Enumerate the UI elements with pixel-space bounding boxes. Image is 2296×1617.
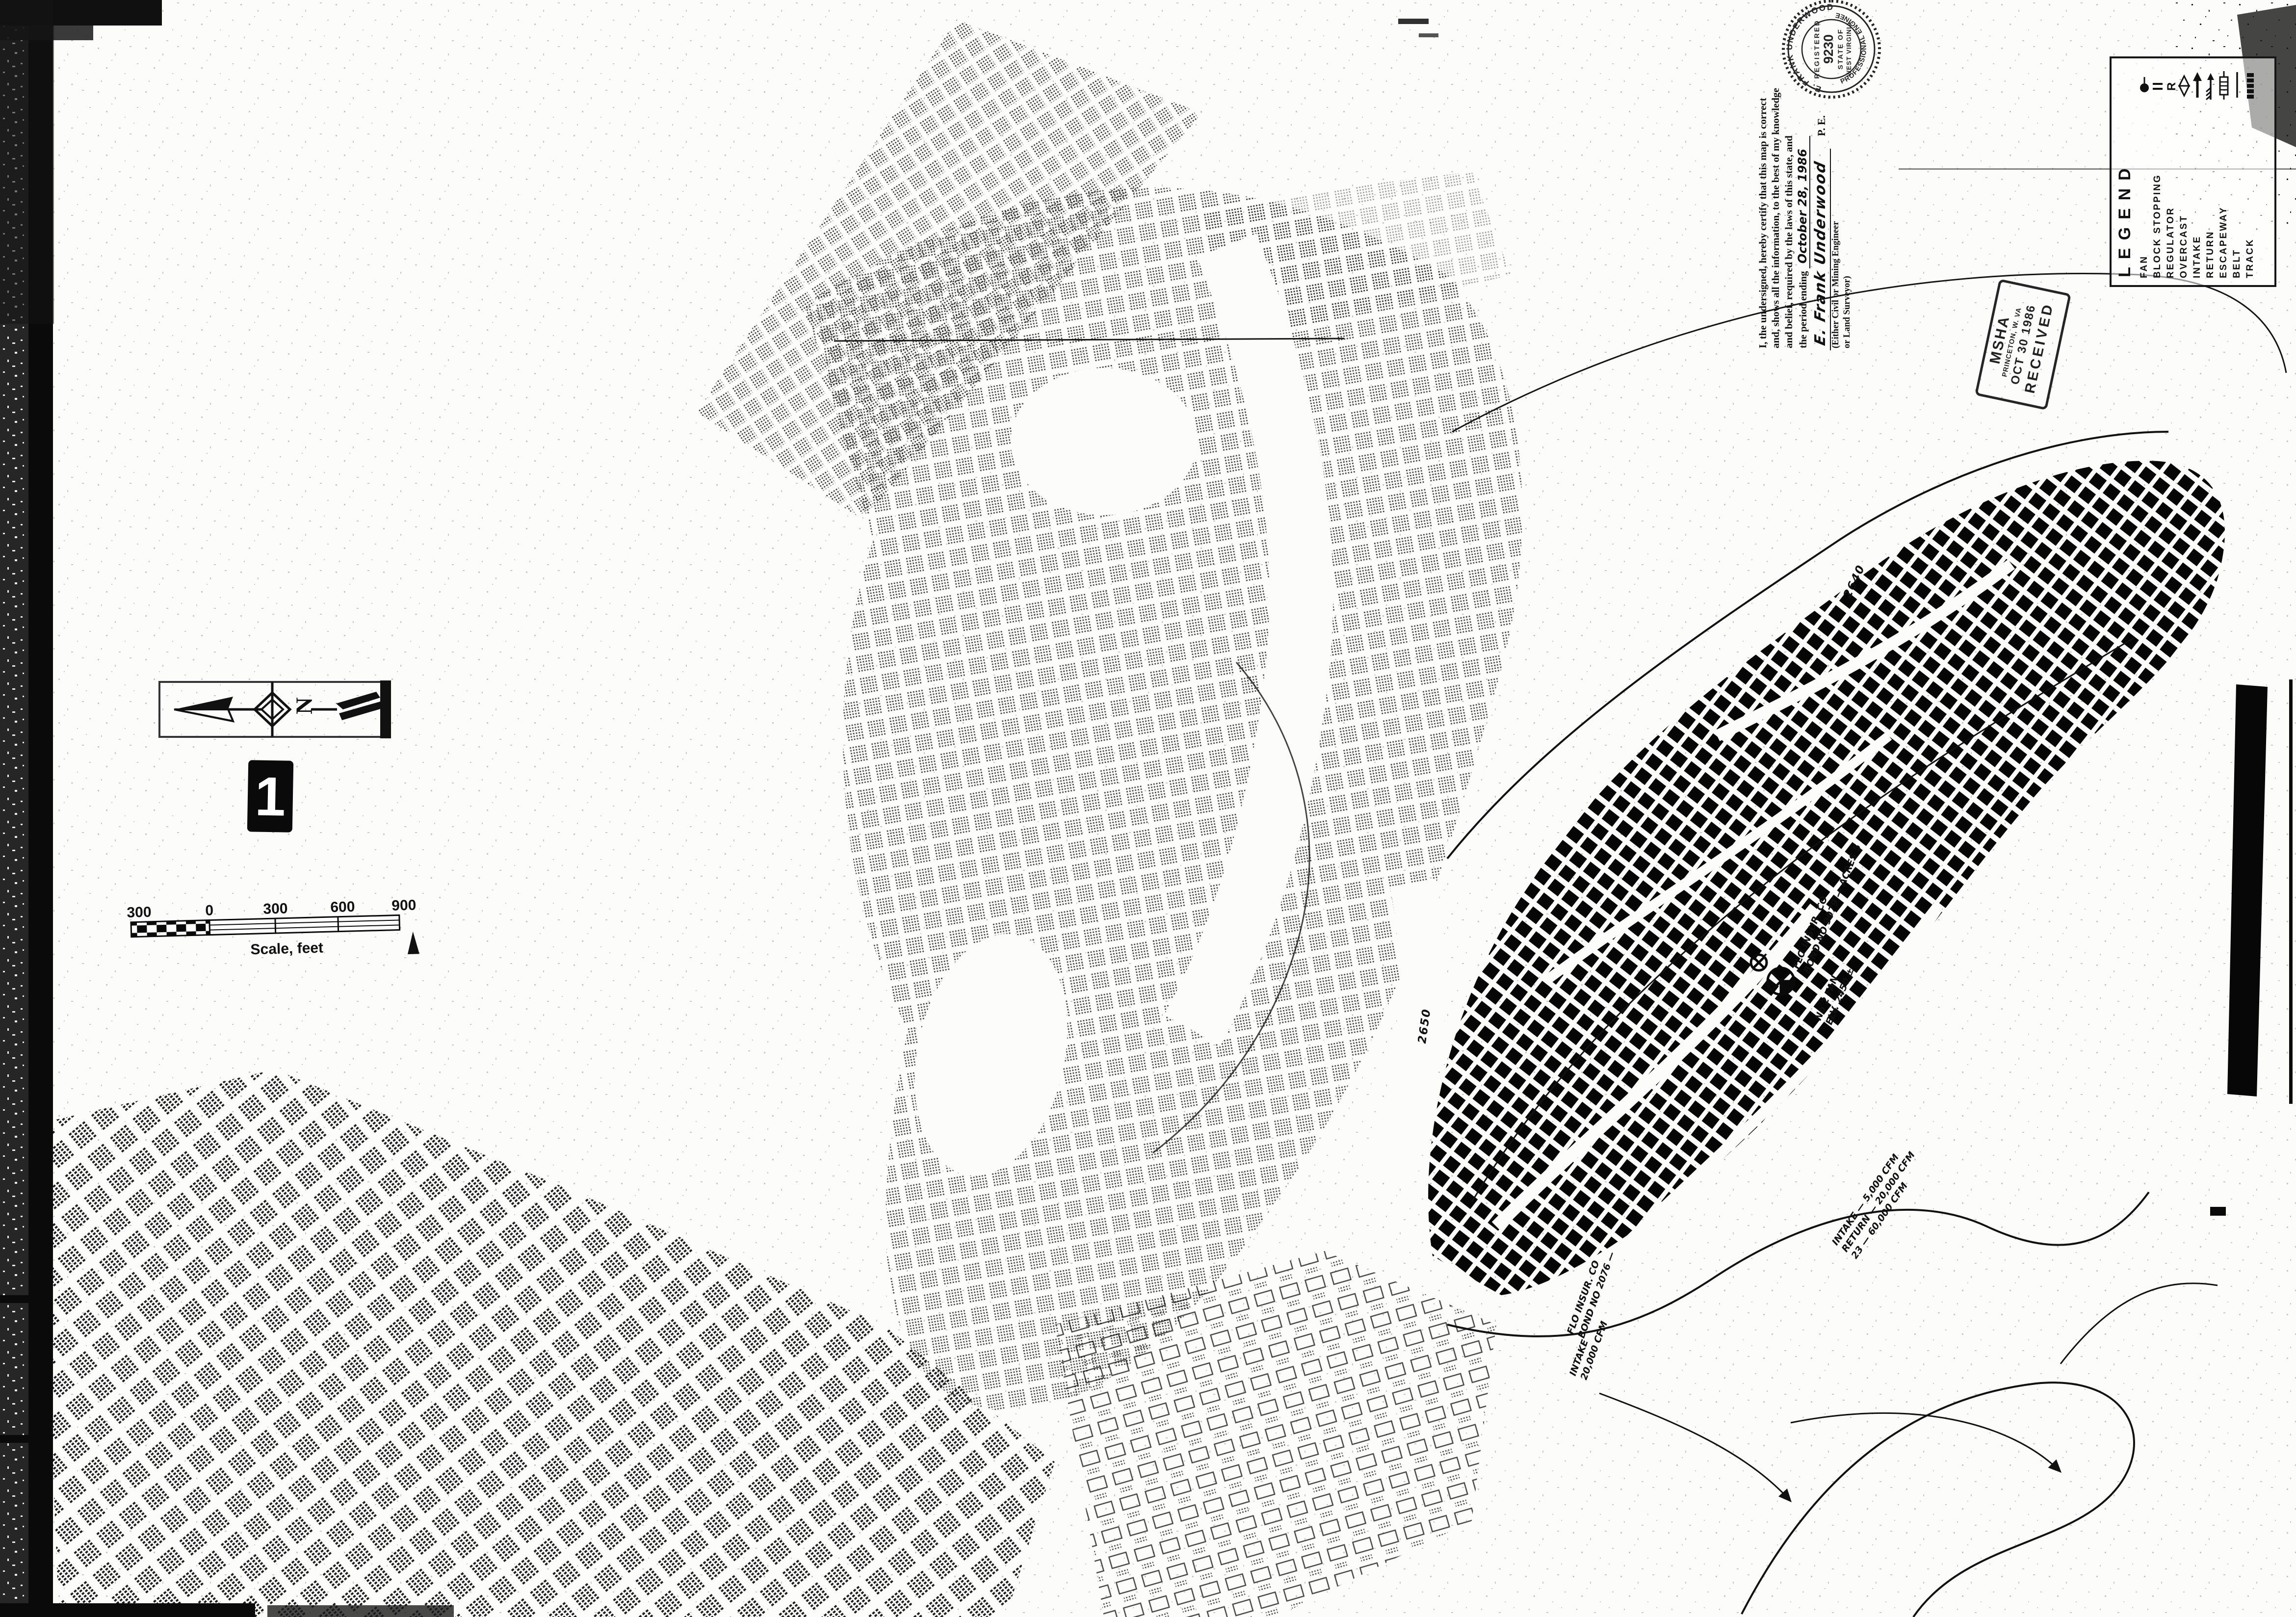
legend-row-block-stopping: BLOCK STOPPING <box>2151 65 2164 278</box>
svg-text:600: 600 <box>330 899 355 915</box>
scanned-mine-map-page: N 300 0 300 600 900 Scale, feet LEGEND F… <box>0 0 2296 1617</box>
handwritten-date: October 28, 1986 <box>1796 136 1810 268</box>
legend-row-intake: INTAKE <box>2191 65 2204 278</box>
engineer-seal: E. FRANK UNDERWOOD PROFESSIONAL ENGINEER… <box>1780 0 1883 101</box>
svg-text:R: R <box>2165 82 2177 91</box>
legend-row-overcast: OVERCAST <box>2177 65 2191 278</box>
double-line-symbol-icon <box>2151 65 2164 119</box>
svg-text:WEST VIRGINIA: WEST VIRGINIA <box>1845 22 1852 77</box>
legend-row-regulator: REGULATOR R <box>2164 65 2177 278</box>
legend-row-track: TRACK <box>2244 65 2257 278</box>
svg-text:300: 300 <box>263 900 288 917</box>
compass-n-label: N <box>291 697 317 714</box>
solid-arrow-symbol-icon <box>2191 65 2204 119</box>
svg-text:900: 900 <box>391 897 417 914</box>
single-line-symbol-icon <box>2231 65 2244 119</box>
legend-title: LEGEND <box>2115 65 2135 277</box>
svg-text:STATE OF: STATE OF <box>1836 28 1844 69</box>
fan-symbol-icon <box>2138 65 2151 119</box>
legend-row-escapeway: ESCAPEWAY <box>2217 65 2230 278</box>
sheet-number-marker: 1 <box>247 760 294 833</box>
map-artwork: N 300 0 300 600 900 Scale, feet <box>0 0 2296 1617</box>
svg-text:9230: 9230 <box>1821 34 1836 64</box>
signature-suffix: P. E. <box>1815 115 1827 136</box>
scale-caption: Scale, feet <box>250 940 323 958</box>
svg-text:REGISTERED: REGISTERED <box>1813 19 1821 78</box>
legend-row-belt: BELT <box>2230 65 2244 278</box>
certification-block: I, the undersigned, hereby certify that … <box>1756 7 1854 348</box>
letter-r-symbol-icon: R <box>2165 65 2177 119</box>
feathered-arrow-symbol-icon <box>2204 65 2217 119</box>
hatched-line-symbol-icon <box>2244 65 2257 119</box>
legend-row-fan: FAN <box>2138 65 2151 278</box>
svg-text:0: 0 <box>205 902 214 918</box>
signature: E. Frank Underwood <box>1811 145 1831 351</box>
svg-text:300: 300 <box>127 904 152 921</box>
legend-box: LEGEND FAN BLOCK STOPPING REGULATOR R OV… <box>2110 56 2276 287</box>
bowtie-symbol-icon <box>2178 65 2191 119</box>
legend-row-return: RETURN <box>2204 65 2217 278</box>
barred-rectangle-symbol-icon <box>2218 65 2230 119</box>
